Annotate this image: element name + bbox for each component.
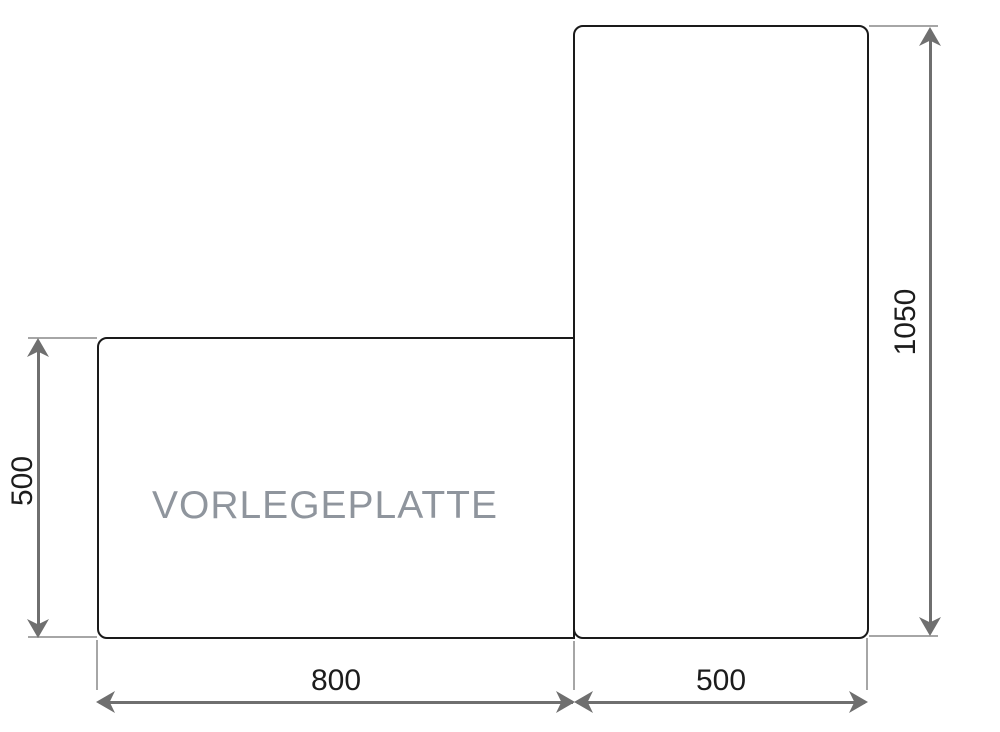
extension-line-right-bottom — [869, 635, 938, 637]
part-label: VORLEGEPLATTE — [152, 484, 498, 528]
extension-line-bottom-left — [96, 640, 98, 690]
dimension-value-bottom-left-width: 800 — [311, 664, 361, 698]
extension-line-right-top — [869, 25, 938, 27]
dimension-line-right-height — [929, 31, 932, 632]
technical-drawing: VORLEGEPLATTE 500 1050 800 500 — [0, 0, 1000, 732]
tall-panel-outline — [573, 25, 869, 639]
dimension-value-right-height: 1050 — [889, 289, 923, 356]
dimension-line-bottom-left-width — [99, 701, 573, 704]
dimension-value-bottom-right-width: 500 — [696, 664, 746, 698]
dimension-line-bottom-right-width — [577, 701, 865, 704]
extension-line-bottom-right — [866, 638, 868, 690]
extension-line-bottom-middle — [573, 641, 575, 690]
dimension-value-left-height: 500 — [6, 456, 40, 506]
